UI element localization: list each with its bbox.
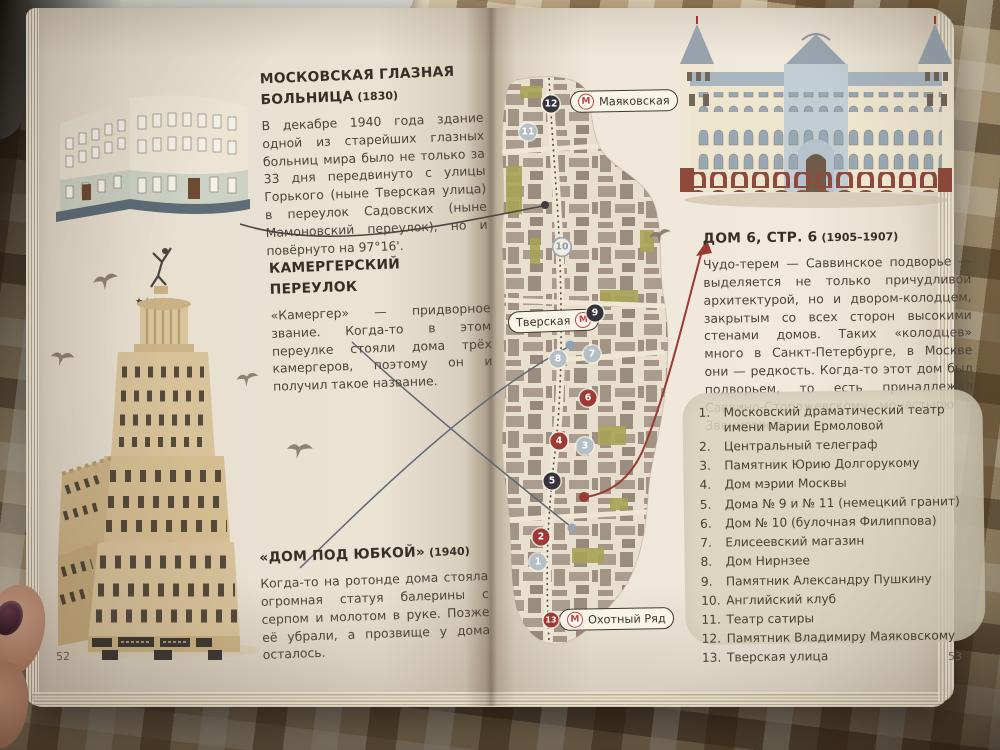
map-marker-12: 12	[543, 96, 560, 113]
map-marker-5: 5	[544, 473, 561, 490]
map-marker-7: 7	[584, 346, 601, 363]
map-marker-8: 8	[550, 351, 567, 368]
map-marker-11: 11	[520, 124, 537, 141]
map-marker-2: 2	[533, 529, 550, 546]
map-markers: 12111098764352113	[0, 0, 1000, 750]
map-marker-10: 10	[554, 239, 571, 256]
map-marker-3: 3	[577, 438, 594, 455]
map-marker-1: 1	[530, 554, 547, 571]
map-marker-9: 9	[587, 305, 604, 322]
map-marker-4: 4	[551, 433, 568, 450]
map-marker-6: 6	[580, 390, 597, 407]
map-marker-13: 13	[544, 613, 559, 628]
book-photo: ★★★★★	[0, 0, 1000, 750]
